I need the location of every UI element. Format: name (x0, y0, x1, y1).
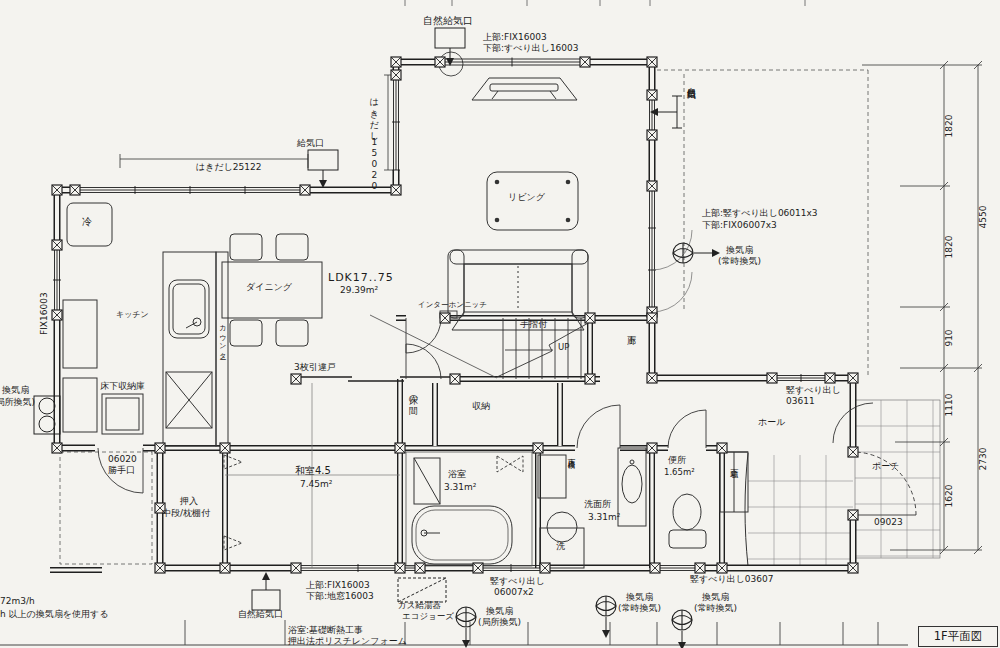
label-oshiire-1: 押入 (180, 497, 198, 506)
label-gas-heater-2: エコジョーズ (402, 612, 454, 621)
label-fan-left-2: (局所換気) (0, 398, 35, 407)
label-underfloor-hatch: 床下点検口 (567, 452, 575, 457)
label-win-03607: 竪すべり出し03607 (690, 575, 773, 584)
label-natural-vent-right: 自然給気口 (686, 80, 695, 85)
label-win-bottom-upper: 上部:FIX16003 (306, 581, 370, 590)
dimension-texts: 1820 1820 910 1110 1620 4550 2730 (944, 114, 988, 507)
vent-box-kyuki (308, 150, 338, 170)
label-katteguchi-2: 勝手口 (108, 466, 135, 475)
label-toilet: 便所 (668, 456, 686, 465)
dim-4550: 4550 (978, 205, 988, 228)
label-win-right-lower: 下部:FIX06007x3 (702, 221, 777, 230)
label-hall: ホール (758, 418, 785, 427)
drawing-title-box: 1F平面図 (918, 626, 998, 647)
label-ldk: LDK17..75 (328, 272, 394, 284)
label-natural-vent-top: 自然給気口 (423, 16, 473, 27)
tv (490, 84, 558, 91)
label-vent-note-2: h 以上の換気扇を使用する (0, 610, 108, 619)
label-ldk-area: 29.39m² (340, 286, 378, 295)
kitchen-sink (169, 280, 209, 338)
label-toilet-area: 1.65m² (664, 468, 695, 477)
label-win-03611-1: 竪すべり出し (786, 386, 841, 395)
vent-box-top (435, 28, 465, 48)
label-fan-bottom2-1: 換気扇 (626, 593, 653, 602)
label-bath-note-2: 押出法ポリスチレンフォーム (288, 637, 407, 646)
label-fan-right-1: 換気扇 (726, 246, 753, 255)
reference-ticks (0, 0, 908, 645)
label-win-06007-1: 竪すべり出し (490, 577, 545, 586)
vanity (618, 448, 646, 526)
label-porch: ポーチ (872, 462, 899, 471)
label-hakidashi-25122: はきだし25122 (196, 163, 261, 172)
label-bath: 浴室 (448, 470, 466, 479)
kitchen-island (163, 252, 216, 446)
toilet-fixture (669, 494, 706, 548)
label-washitsu-area: 7.45m² (300, 480, 332, 489)
label-hakidashi-15020: はきだし15020 (369, 92, 378, 192)
label-living: リビング (508, 193, 545, 202)
gas-heater (398, 578, 446, 602)
bath-unit (406, 452, 532, 566)
label-natural-vent-bottom: 自然給気口 (238, 610, 283, 619)
drawing-title: 1F平面図 (934, 629, 982, 644)
laundry (540, 512, 584, 568)
label-laundry: 洗 (556, 542, 565, 551)
label-gas-heater-1: ガス給湯器 (398, 601, 441, 610)
dim-1820b: 1820 (944, 235, 954, 258)
label-interphone-niche: インターホンニッチ (418, 301, 487, 309)
label-win-06007-2: 06007x2 (494, 588, 534, 597)
label-09023: 09023 (874, 518, 903, 527)
label-fan-bottom3-2: (常時換気) (694, 604, 737, 613)
dim-1110: 1110 (944, 393, 954, 416)
label-up: UP (558, 343, 569, 352)
label-shoe-cabinet: 下駄箱 (729, 462, 737, 465)
fixtures (63, 78, 748, 568)
label-win-03611-2: 03611 (786, 397, 815, 406)
label-fan-left-1: 換気扇 (2, 386, 29, 395)
label-fix16003-left: FIX16003 (40, 292, 49, 335)
interior-walls (50, 318, 727, 570)
label-fridge: 冷 (82, 217, 92, 228)
cabinet-2 (63, 378, 97, 432)
cabinet-1 (63, 300, 97, 368)
floor-plan-drawing: 1820 1820 910 1110 1620 4550 2730 (0, 0, 1000, 648)
label-win-top-lower: 下部:すべり出し16003 (483, 44, 579, 53)
label-oshiire-2: 中段/枕棚付 (162, 509, 210, 518)
porch-tile-grid (855, 400, 940, 558)
label-fan-bottom1-2: (局所換気) (478, 618, 521, 627)
leader-line (370, 315, 497, 378)
stove (166, 372, 212, 428)
label-kitchen: キッチン (116, 311, 149, 319)
label-counter: カウンター (218, 320, 225, 357)
floor-plan-page: 1820 1820 910 1110 1620 4550 2730 自然給気口 … (0, 0, 1000, 648)
entry-tile-grid (748, 455, 853, 566)
label-bath-area: 3.31m² (444, 483, 476, 492)
label-fan-right-2: (常時換気) (718, 257, 761, 266)
label-corridor: 廊下 (626, 328, 635, 330)
label-fan-bottom2-2: (常時換気) (618, 604, 661, 613)
dim-910: 910 (944, 329, 954, 346)
label-underfloor-storage: 床下収納庫 (100, 382, 145, 391)
underfloor-hatch-cabinet (538, 455, 566, 498)
label-win-top-upper: 上部:FIX16003 (483, 33, 547, 42)
entry-step-curve (722, 452, 748, 566)
label-dining: ダイニング (246, 283, 292, 292)
dim-2730: 2730 (978, 447, 988, 470)
label-bath-note-1: 浴室:基礎断熱工事 (288, 626, 363, 635)
label-sliding-door: 3枚引違戸 (294, 363, 336, 372)
label-handrail: 手摺付 (520, 320, 547, 329)
dim-1820a: 1820 (944, 114, 954, 137)
label-storage: 収納 (472, 402, 490, 411)
label-tokonoma: 床の間 (408, 388, 417, 401)
label-kyukiko: 給気口 (297, 139, 324, 148)
vent-box-bottom (252, 590, 280, 610)
label-washroom-area: 3.31m² (588, 513, 620, 522)
label-win-bottom-lower: 下部:地窓16003 (306, 592, 374, 601)
label-katteguchi-1: 06020 (108, 455, 137, 464)
underfloor-storage-box (102, 394, 143, 434)
label-vent-note-1: 72m3/h (0, 597, 35, 606)
label-fan-bottom3-1: 換気扇 (702, 593, 729, 602)
label-washroom: 洗面所 (584, 500, 611, 509)
dim-1620: 1620 (944, 484, 954, 507)
label-win-right-upper: 上部:竪すべり出し06011x3 (702, 209, 818, 218)
label-washitsu: 和室4.5 (295, 466, 331, 477)
dimension-lines (120, 61, 982, 554)
label-fan-bottom1-1: 換気扇 (486, 607, 513, 616)
tv-board (472, 78, 577, 100)
